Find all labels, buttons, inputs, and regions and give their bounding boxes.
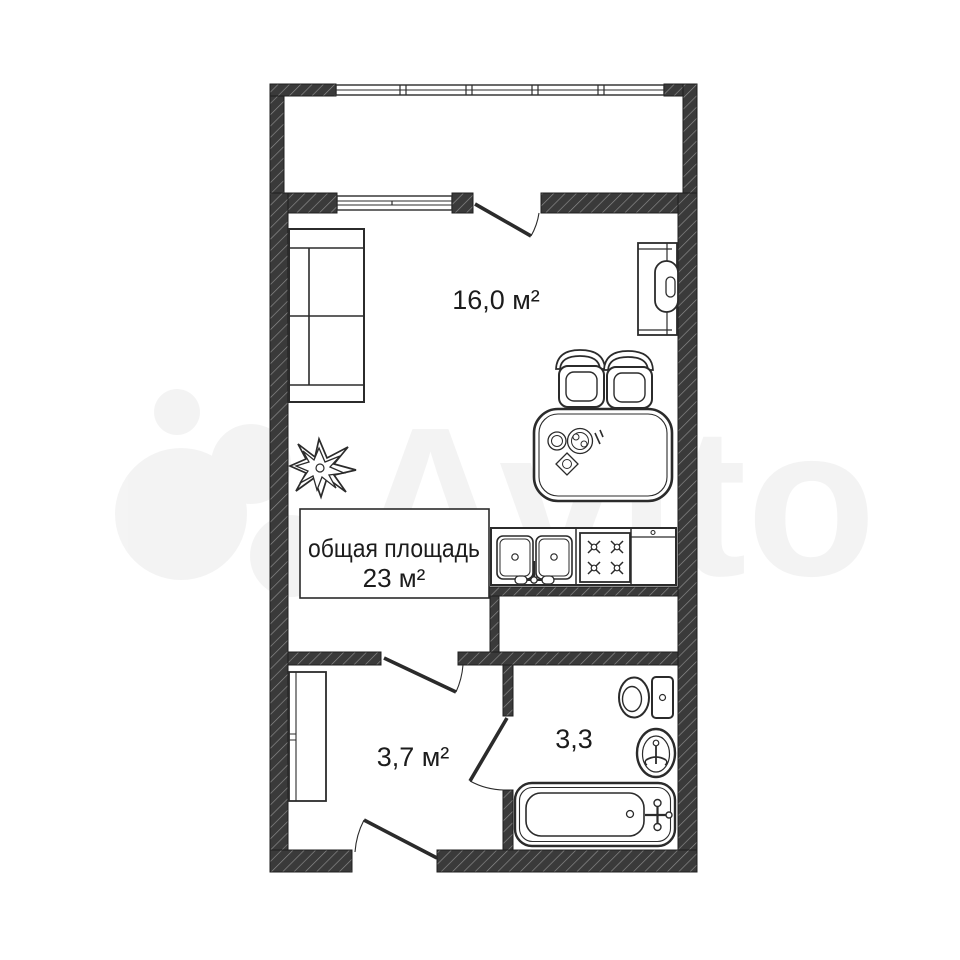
- bathroom-wall-upper: [503, 665, 513, 716]
- total-area-line2: 23 м²: [363, 563, 426, 593]
- bathroom-door: [470, 718, 507, 790]
- entrance-door: [355, 820, 437, 858]
- balcony-top-wall-left: [270, 84, 336, 96]
- dining-table: [534, 409, 672, 501]
- watermark-logo-circle: [154, 389, 200, 435]
- bottom-wall-right: [437, 850, 697, 872]
- top-wall-segment-b: [452, 193, 473, 213]
- door-swing-arc: [531, 213, 539, 236]
- toilet: [619, 677, 673, 718]
- plant: [290, 439, 356, 497]
- hallway-area-label: 3,7 м²: [377, 742, 450, 772]
- bathroom-area-label: 3,3: [555, 724, 593, 754]
- bathroom-sink: [637, 729, 675, 777]
- hallway-door: [384, 658, 463, 692]
- wardrobe: [289, 672, 326, 801]
- stove: [580, 533, 630, 582]
- total-area-label-box: общая площадь 23 м²: [300, 509, 489, 598]
- balcony-glazing: [336, 85, 664, 95]
- main-room-area-label: 16,0 м²: [452, 285, 540, 315]
- bathtub: [515, 783, 675, 846]
- floor-plan-page: Avito: [0, 0, 960, 960]
- top-wall-segment-c: [541, 193, 697, 213]
- left-outer-wall: [270, 193, 288, 872]
- door-swing-arc: [456, 665, 463, 692]
- total-area-line1: общая площадь: [308, 533, 480, 563]
- sofa: [289, 229, 364, 402]
- door-leaf: [384, 658, 456, 692]
- door-swing-arc: [355, 820, 364, 852]
- balcony-door: [475, 204, 539, 236]
- right-outer-wall: [678, 193, 697, 872]
- room-window: [337, 196, 452, 210]
- floor-plan: Avito: [0, 0, 960, 960]
- bottom-wall-left: [270, 850, 352, 872]
- room-divider-wall-right: [458, 652, 678, 665]
- niche-left-wall: [490, 596, 499, 652]
- kitchen-counter: [491, 528, 676, 585]
- door-leaf: [364, 820, 437, 858]
- door-leaf: [475, 204, 531, 236]
- door-swing-arc: [470, 781, 504, 790]
- desk-with-chair: [638, 243, 678, 335]
- dining-chair: [556, 350, 605, 407]
- dining-chair: [604, 351, 653, 408]
- door-leaf: [470, 718, 507, 781]
- watermark-logo-circle: [115, 448, 247, 580]
- room-divider-wall-left: [288, 652, 381, 665]
- bathroom-wall-lower: [503, 790, 513, 850]
- kitchen-back-wall: [486, 587, 678, 596]
